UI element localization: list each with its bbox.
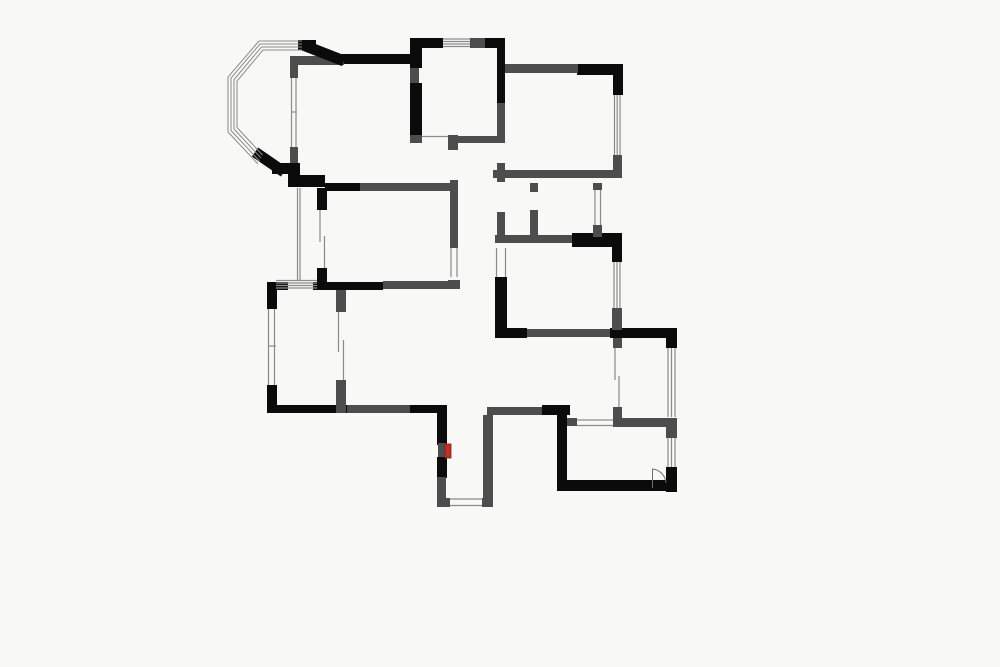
partition-wall-segment bbox=[448, 135, 458, 150]
partition-wall-segment bbox=[437, 498, 450, 507]
partition-wall-segment bbox=[530, 183, 538, 192]
structural-wall-segment bbox=[410, 83, 422, 135]
partition-wall-segment bbox=[612, 308, 622, 330]
structural-wall-segment bbox=[325, 183, 360, 191]
partition-wall-segment bbox=[483, 415, 493, 507]
partition-wall-segment bbox=[290, 147, 298, 163]
partition-wall-segment bbox=[482, 498, 493, 507]
partition-wall-segment bbox=[495, 235, 572, 243]
structural-wall-segment bbox=[267, 405, 347, 413]
partition-wall-segment bbox=[497, 103, 505, 143]
structural-wall-segment bbox=[317, 188, 327, 210]
structural-wall-segment bbox=[410, 38, 422, 68]
partition-wall-segment bbox=[493, 170, 620, 178]
floorplan-canvas bbox=[0, 0, 1000, 667]
partition-wall-segment bbox=[487, 407, 542, 415]
structural-wall-segment bbox=[288, 175, 325, 187]
partition-wall-segment bbox=[593, 183, 602, 190]
partition-wall-segment bbox=[336, 380, 346, 413]
structural-wall-segment bbox=[666, 330, 677, 348]
partition-wall-segment bbox=[360, 183, 458, 191]
partition-wall-segment bbox=[530, 210, 538, 237]
partition-wall-segment bbox=[410, 135, 422, 143]
partition-wall-segment bbox=[437, 477, 446, 498]
structural-wall-segment bbox=[317, 268, 327, 288]
structural-wall-segment bbox=[557, 407, 567, 490]
structural-wall-segment bbox=[613, 67, 623, 95]
partition-wall-segment bbox=[613, 338, 622, 348]
entry-door-red-marker bbox=[445, 444, 451, 458]
structural-wall-segment bbox=[542, 405, 570, 415]
partition-wall-segment bbox=[593, 225, 602, 237]
partition-wall-segment bbox=[497, 163, 505, 182]
partition-wall-segment bbox=[505, 64, 578, 73]
structural-wall-segment bbox=[267, 282, 277, 309]
floorplan-page bbox=[0, 0, 1000, 667]
structural-wall-segment bbox=[497, 41, 505, 103]
partition-wall-segment bbox=[290, 65, 298, 78]
partition-wall-segment bbox=[347, 405, 410, 413]
partition-wall-segment bbox=[567, 418, 577, 426]
partition-wall-segment bbox=[666, 418, 677, 438]
structural-wall-segment bbox=[495, 328, 527, 338]
structural-wall-segment bbox=[410, 405, 438, 413]
structural-wall-segment bbox=[437, 405, 447, 445]
structural-wall-segment bbox=[495, 277, 507, 335]
structural-wall-segment bbox=[557, 480, 677, 491]
partition-wall-segment bbox=[383, 281, 453, 289]
partition-wall-segment bbox=[458, 136, 497, 143]
structural-wall-segment bbox=[612, 235, 622, 262]
partition-wall-segment bbox=[527, 329, 610, 337]
partition-wall-segment bbox=[613, 418, 668, 427]
partition-wall-segment bbox=[470, 38, 485, 48]
structural-wall-segment bbox=[437, 457, 447, 478]
partition-wall-segment bbox=[613, 407, 622, 418]
partition-wall-segment bbox=[336, 290, 346, 312]
structural-wall-segment bbox=[342, 54, 413, 64]
partition-wall-segment bbox=[410, 68, 419, 83]
